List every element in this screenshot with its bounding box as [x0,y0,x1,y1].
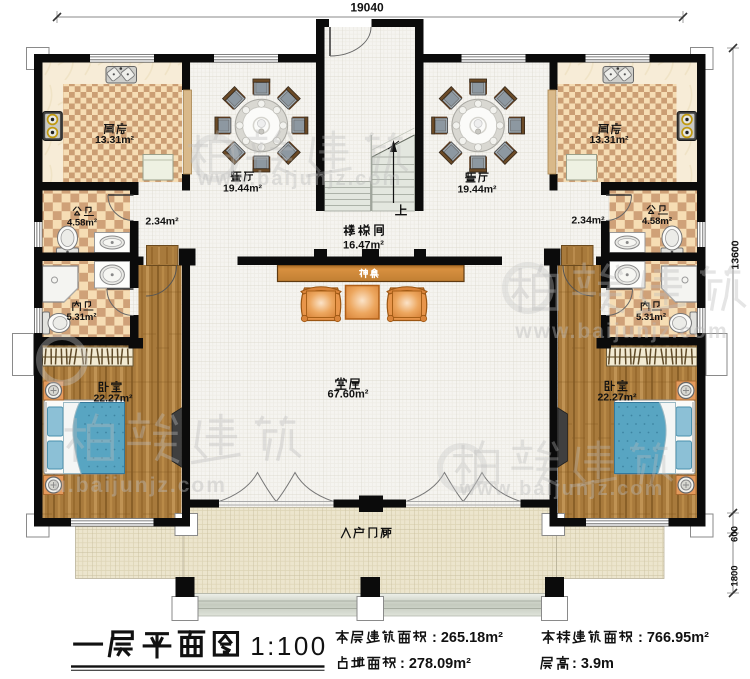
svg-text:13.31m²: 13.31m² [589,134,629,146]
svg-text:19.44m²: 19.44m² [457,184,497,196]
svg-text:67.60m²: 67.60m² [328,389,369,401]
svg-text:www.baijunjz.com: www.baijunjz.com [197,168,403,190]
svg-text:www.baijunjz.com: www.baijunjz.com [459,478,665,500]
svg-text:u.baijunjz.com: u.baijunjz.com [53,474,227,497]
svg-text:600: 600 [730,526,741,542]
svg-text:1800: 1800 [730,565,741,586]
svg-text:www.baijunjz.com: www.baijunjz.com [514,320,728,343]
svg-text:: 278.09m²: : 278.09m² [400,656,471,672]
svg-text:13600: 13600 [730,240,742,269]
svg-text:16.47m²: 16.47m² [343,240,384,252]
svg-text:1:100: 1:100 [250,631,328,661]
svg-text:2.34m²: 2.34m² [571,215,605,227]
svg-text:22.27m²: 22.27m² [597,392,637,404]
svg-text:: 265.18m²: : 265.18m² [432,630,503,646]
svg-text:13.31m²: 13.31m² [95,134,135,146]
svg-text:5.31m²: 5.31m² [66,312,96,323]
svg-text:19040: 19040 [350,1,384,15]
svg-text:4.58m²: 4.58m² [642,216,672,227]
svg-text:: 3.9m: : 3.9m [572,656,614,672]
svg-text:2.34m²: 2.34m² [145,216,179,228]
svg-text:: 766.95m²: : 766.95m² [638,630,709,646]
svg-text:4.58m²: 4.58m² [67,218,97,229]
svg-text:22.27m²: 22.27m² [93,393,133,405]
